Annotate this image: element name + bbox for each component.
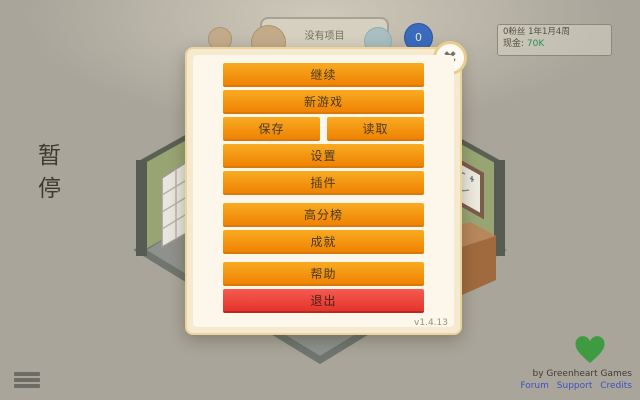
heart-icon xyxy=(574,335,606,365)
help-button[interactable]: 帮助 xyxy=(223,262,424,286)
cash-line: 现金: 70K xyxy=(503,38,606,50)
highscores-button[interactable]: 高分榜 xyxy=(223,203,424,227)
left-corner-pillar xyxy=(136,160,147,256)
cash-label: 现金: xyxy=(503,39,524,49)
support-link[interactable]: Support xyxy=(557,381,593,391)
version-label: v1.4.13 xyxy=(414,318,448,328)
fans-and-date: 0粉丝 1年1月4周 xyxy=(503,27,606,38)
credits-link[interactable]: Credits xyxy=(600,381,632,391)
achievements-button[interactable]: 成就 xyxy=(223,230,424,254)
paused-label: 暂停 xyxy=(38,140,67,207)
mods-button[interactable]: 插件 xyxy=(223,171,424,195)
pause-menu-dialog: ✖ 继续 新游戏 保存 读取 设置 插件 高分榜 成就 帮助 退出 v1.4.1… xyxy=(185,47,462,335)
load-button[interactable]: 读取 xyxy=(327,117,424,141)
settings-button[interactable]: 设置 xyxy=(223,144,424,168)
game-screen: 没有项目 0 0粉丝 1年1月4周 现金: 70K 暂停 ✖ 继续 新游戏 保存… xyxy=(0,0,640,400)
save-button[interactable]: 保存 xyxy=(223,117,320,141)
forum-link[interactable]: Forum xyxy=(520,381,549,391)
cash-value: 70K xyxy=(527,39,544,49)
continue-button[interactable]: 继续 xyxy=(223,63,424,87)
footer-links: Forum Support Credits xyxy=(515,381,632,391)
save-load-row: 保存 读取 xyxy=(223,117,424,141)
status-speech-text: 没有项目 xyxy=(305,27,345,42)
hamburger-menu-icon[interactable] xyxy=(14,372,40,390)
new-game-button[interactable]: 新游戏 xyxy=(223,90,424,114)
pause-menu-buttons: 继续 新游戏 保存 读取 设置 插件 高分榜 成就 帮助 退出 xyxy=(193,55,454,327)
studio-credit: by Greenheart Games xyxy=(533,369,632,379)
exit-button[interactable]: 退出 xyxy=(223,289,424,313)
research-points-count: 0 xyxy=(415,31,422,44)
stats-box: 0粉丝 1年1月4周 现金: 70K xyxy=(497,24,612,56)
